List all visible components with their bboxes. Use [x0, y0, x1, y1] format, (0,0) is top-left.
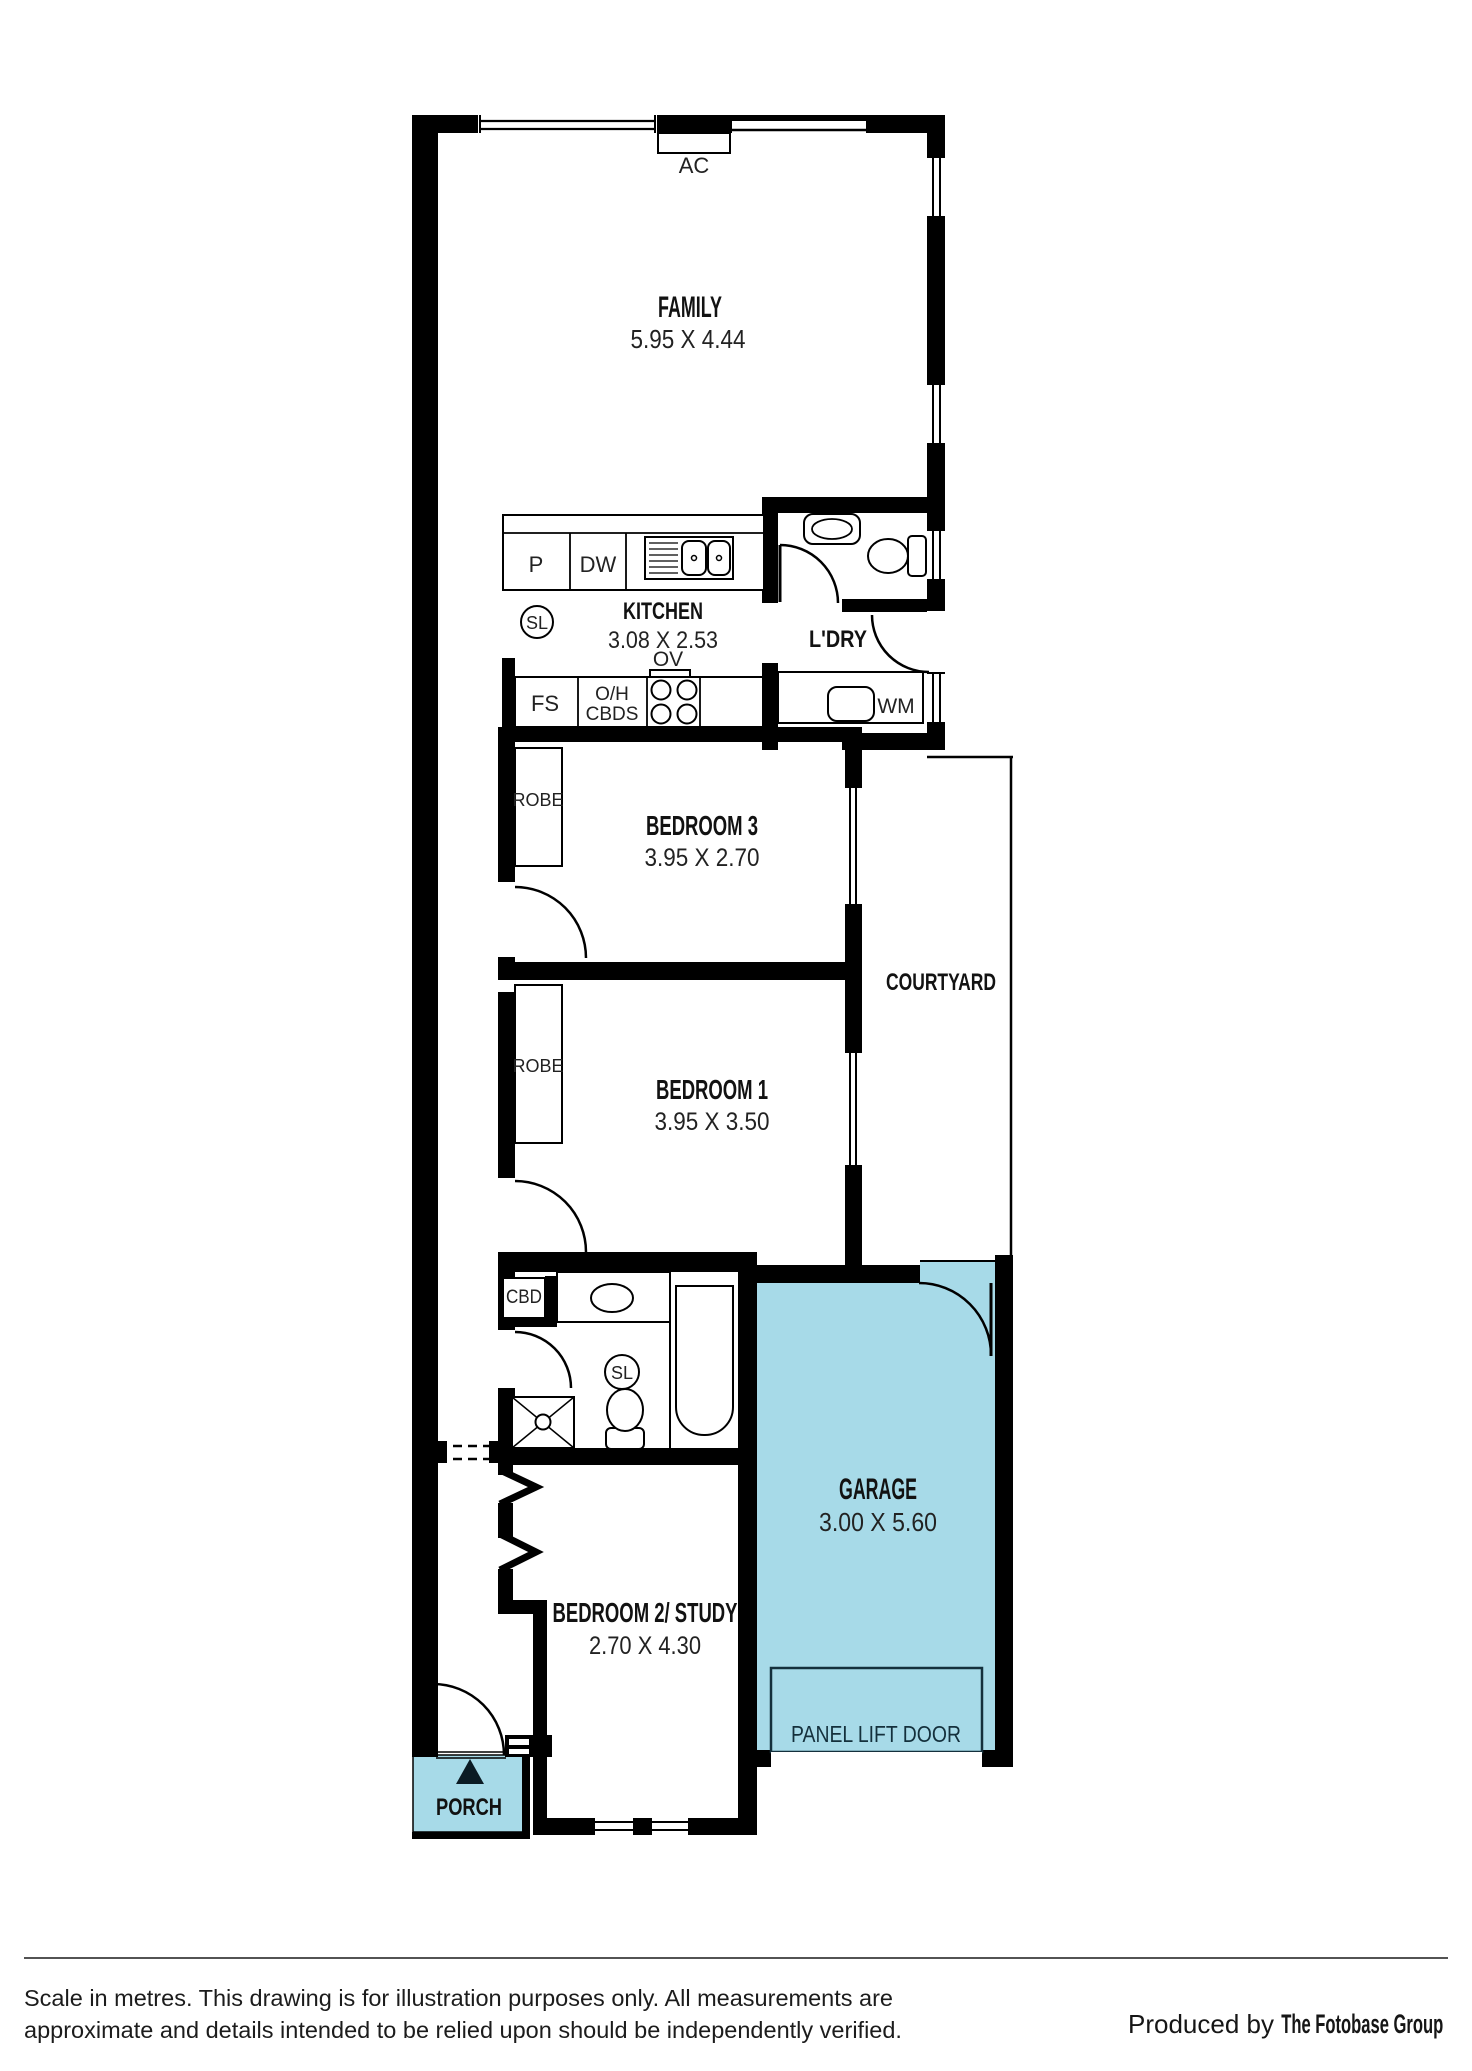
shower	[512, 1397, 574, 1448]
toilet	[606, 1389, 644, 1449]
entry-sidelight	[508, 1738, 530, 1755]
kitchen-sink	[645, 537, 733, 579]
window-bedroom3-east	[845, 786, 862, 906]
cupboard-label: CBD	[506, 1287, 542, 1308]
wall-bed2-south	[533, 1818, 757, 1835]
floor-plan-drawing: FAMILY 5.95 X 4.44 AC P DW SL KITCHEN 3.…	[0, 0, 1472, 2071]
opening-chevron-icon	[500, 1534, 536, 1570]
courtyard-fence	[927, 757, 1013, 1261]
room-dims-bedroom1: 3.95 X 3.50	[655, 1108, 770, 1136]
credit-name: The Fotobase Group	[1281, 2009, 1443, 2039]
window-family-east-1	[927, 156, 945, 218]
dishwasher-label: DW	[580, 552, 617, 577]
wall-segment	[498, 1503, 513, 1538]
opening-chevron-icon	[500, 1470, 536, 1504]
garage-door-opening	[771, 1752, 982, 1767]
wall-segment	[655, 115, 732, 133]
room-label-porch: PORCH	[436, 1794, 502, 1821]
disclaimer-line-2: approximate and details intended to be r…	[24, 2017, 902, 2043]
wall-porch-right	[522, 1755, 530, 1839]
wall-garage-door-corner	[750, 1750, 771, 1767]
wall-laundry-north	[762, 497, 927, 513]
wall-porch-bottom	[412, 1832, 526, 1839]
bathroom-vanity	[557, 1272, 670, 1322]
wc-toilet	[868, 536, 926, 576]
room-label-bedroom3: BEDROOM 3	[646, 810, 758, 841]
footer: Scale in metres. This drawing is for ill…	[24, 1958, 1448, 2043]
room-label-family: FAMILY	[658, 291, 722, 324]
bathtub	[676, 1286, 733, 1435]
window-bedroom2-south-2	[650, 1818, 690, 1835]
wall-bed1-west	[498, 992, 515, 1178]
wall-garage-west	[738, 1252, 757, 1835]
door-arc-wc	[780, 545, 838, 603]
door-arc-bathroom	[515, 1332, 571, 1388]
wall-left	[412, 115, 438, 1757]
panel-lift-door-label: PANEL LIFT DOOR	[791, 1721, 961, 1747]
laundry-trough	[828, 687, 874, 721]
door-arc-laundry-courtyard	[872, 615, 929, 672]
window-laundry-east	[927, 672, 945, 724]
wall-garage-door-corner	[982, 1750, 1013, 1767]
skylight-label-bath: SL	[611, 1363, 633, 1383]
room-label-laundry: L'DRY	[809, 626, 867, 653]
wall-garage-north	[757, 1265, 920, 1283]
fridge-label: FS	[531, 691, 559, 716]
pantry-label: P	[529, 552, 544, 577]
wall-bed2-west	[533, 1600, 547, 1757]
wall-stub	[845, 1252, 862, 1265]
room-dims-family: 5.95 X 4.44	[631, 324, 746, 354]
producer-credit: Produced by The Fotobase Group	[1128, 2009, 1443, 2039]
room-label-kitchen: KITCHEN	[623, 598, 703, 625]
door-opening-laundry	[927, 611, 945, 672]
wc-basin	[804, 514, 860, 544]
room-label-courtyard: COURTYARD	[886, 969, 996, 996]
skylight-label-kitchen: SL	[526, 613, 548, 633]
oven-label: OV	[653, 648, 683, 671]
window-family-east-2	[927, 383, 945, 445]
door-arc-bedroom1	[515, 1181, 586, 1252]
door-arc-entry	[433, 1684, 504, 1755]
window-wc-east	[927, 529, 945, 581]
garage-panel-door	[771, 1668, 982, 1767]
room-label-garage: GARAGE	[839, 1473, 917, 1506]
wall-kitchen-stub	[502, 658, 515, 728]
disclaimer-line-1: Scale in metres. This drawing is for ill…	[24, 1985, 893, 2011]
wall-bed1-south	[498, 1252, 757, 1272]
robe-label-bed1: ROBE	[512, 1056, 563, 1076]
room-dims-garage: 3.00 X 5.60	[819, 1507, 937, 1537]
room-label-bedroom2: BEDROOM 2/ STUDY	[553, 1597, 738, 1628]
room-label-bedroom1: BEDROOM 1	[656, 1074, 768, 1105]
garage-entry-nook	[920, 1261, 995, 1283]
wall-bed3-north	[498, 727, 862, 742]
room-dims-bedroom2: 2.70 X 4.30	[589, 1632, 701, 1660]
room-dims-bedroom3: 3.95 X 2.70	[645, 844, 760, 872]
window-family-top	[732, 115, 866, 133]
floorplan-page: FAMILY 5.95 X 4.44 AC P DW SL KITCHEN 3.…	[0, 0, 1472, 2071]
overhead-label-2: CBDS	[586, 704, 639, 725]
window-bedroom1-east	[845, 1051, 862, 1167]
window-bedroom2-south-1	[593, 1818, 635, 1835]
ac-label: AC	[679, 153, 710, 178]
wall-garage-east	[995, 1255, 1013, 1767]
robe-label-bed3: ROBE	[512, 790, 563, 810]
ac-unit	[658, 133, 730, 153]
wall-bath-south	[498, 1448, 757, 1465]
wall-wc-divider	[842, 599, 927, 612]
wall-bed3-bed1-divider	[498, 962, 862, 980]
window-family-top-sliding	[478, 114, 657, 134]
washing-machine-label: WM	[877, 695, 914, 718]
credit-prefix: Produced by	[1128, 2009, 1281, 2039]
door-arc-bedroom3	[515, 887, 586, 958]
overhead-label-1: O/H	[595, 684, 629, 705]
